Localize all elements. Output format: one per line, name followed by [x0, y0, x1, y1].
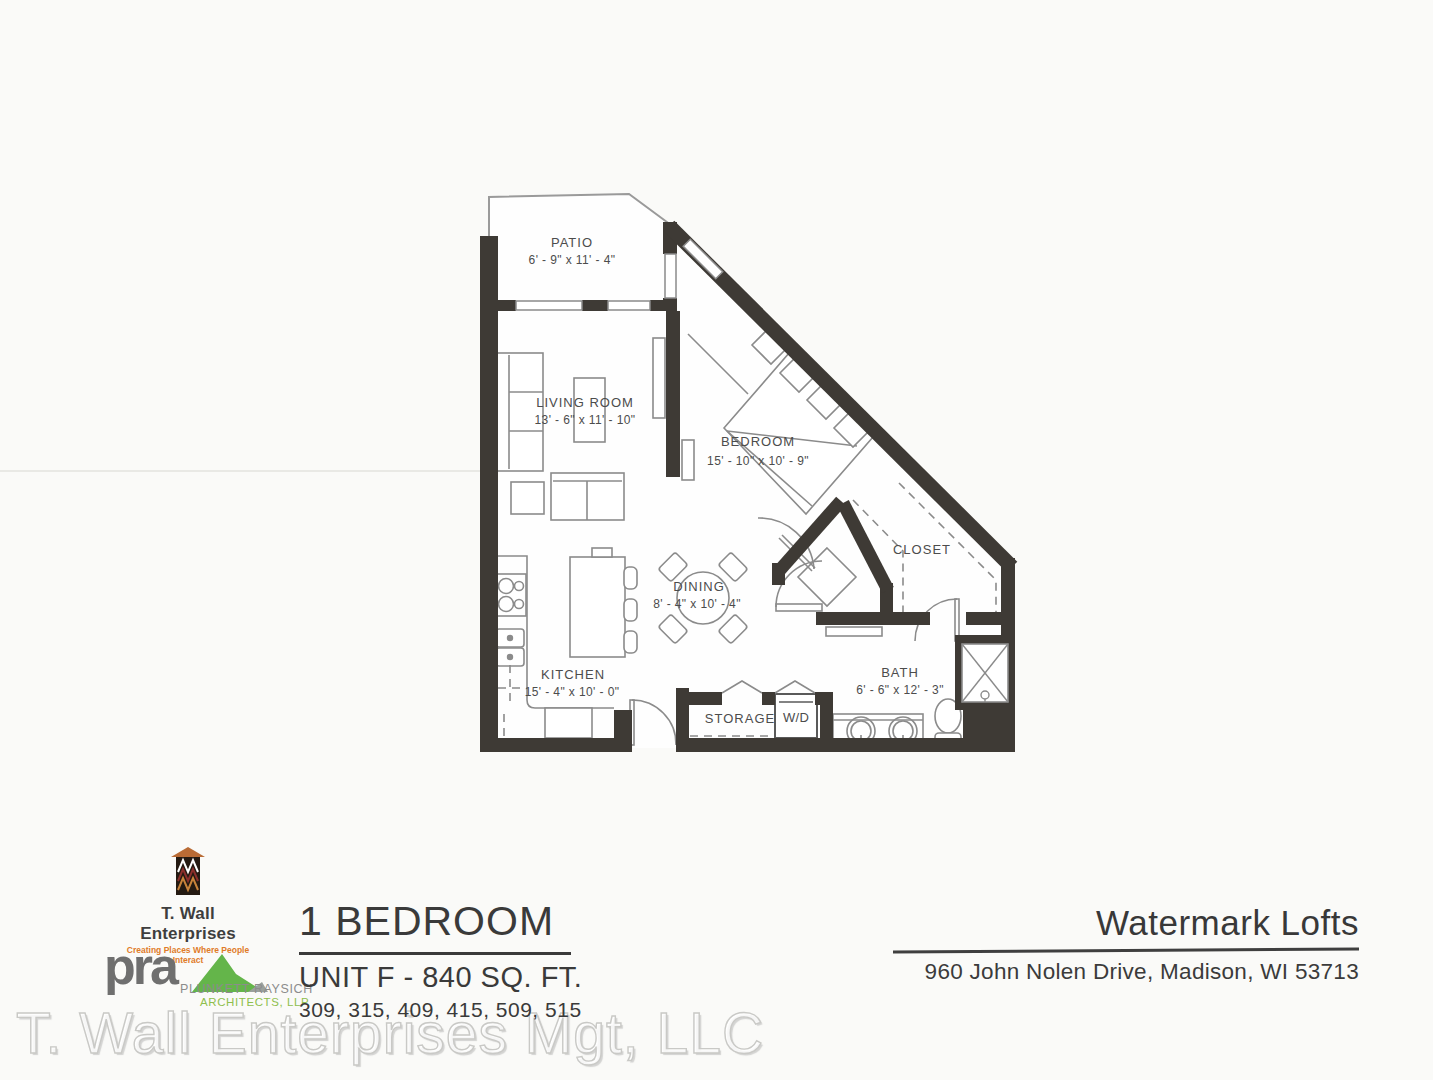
window — [516, 301, 582, 310]
unit-label: UNIT F - 840 SQ. FT. — [299, 961, 582, 994]
unit-divider-rule — [299, 952, 571, 955]
scanned-floor-plan-page: PATIO 6' - 9" x 11' - 4" LIVING ROOM 13'… — [0, 0, 1433, 1080]
sofa — [497, 353, 543, 471]
patio-dims: 6' - 9" x 11' - 4" — [529, 253, 616, 267]
property-info-block: Watermark Lofts 960 John Nolen Drive, Ma… — [893, 903, 1359, 985]
entry-stub — [614, 710, 632, 738]
bath-label: BATH — [881, 665, 919, 680]
unit-numbers: 309, 315, 409, 415, 509, 515 — [299, 998, 582, 1022]
stool — [624, 599, 637, 621]
unit-interior — [489, 194, 1013, 748]
unit-info-block: 1 BEDROOM UNIT F - 840 SQ. FT. 309, 315,… — [299, 898, 582, 1022]
left-wall — [480, 236, 498, 752]
dining-dims: 8' - 4" x 10' - 4" — [653, 597, 741, 611]
living-room-label: LIVING ROOM — [536, 395, 634, 410]
property-divider-rule — [893, 948, 1359, 954]
storage-label: STORAGE — [705, 711, 775, 726]
washer-dryer-label: W/D — [783, 710, 809, 725]
shower-drain — [981, 691, 989, 699]
dresser — [682, 440, 694, 480]
side-chair — [511, 482, 544, 514]
tv-console — [653, 338, 665, 418]
bedroom-dims: 15' - 10" x 10' - 9" — [707, 454, 809, 468]
closet-label: CLOSET — [893, 542, 951, 557]
kitchen-label: KITCHEN — [541, 667, 605, 682]
bedroom-label: BEDROOM — [721, 434, 795, 449]
stool — [624, 567, 637, 589]
hall-shelf — [826, 627, 882, 636]
property-address: 960 John Nolen Drive, Madison, WI 53713 — [893, 959, 1359, 985]
bedroom-count: 1 BEDROOM — [299, 898, 582, 945]
window — [608, 301, 650, 310]
window — [665, 254, 676, 298]
island-overhang — [592, 548, 612, 557]
architect-firm-line1: PLUNKETT RAYSICH — [180, 982, 313, 996]
kitchen-dims: 15' - 4" x 10' - 0" — [525, 685, 620, 699]
kitchen-island — [570, 557, 625, 657]
patio-label: PATIO — [551, 235, 593, 250]
coffee-table — [574, 378, 605, 442]
dining-label: DINING — [673, 579, 725, 594]
bath-dims: 6' - 6" x 12' - 3" — [856, 683, 944, 697]
stool — [624, 631, 637, 653]
twall-tower-icon — [168, 846, 208, 898]
living-room-dims: 13' - 6" x 11' - 10" — [535, 413, 636, 427]
property-name: Watermark Lofts — [893, 903, 1359, 943]
pra-wordmark: pra — [104, 936, 176, 996]
shower — [962, 644, 1008, 702]
base-cabinet — [545, 708, 592, 738]
bottom-wall — [480, 738, 632, 752]
